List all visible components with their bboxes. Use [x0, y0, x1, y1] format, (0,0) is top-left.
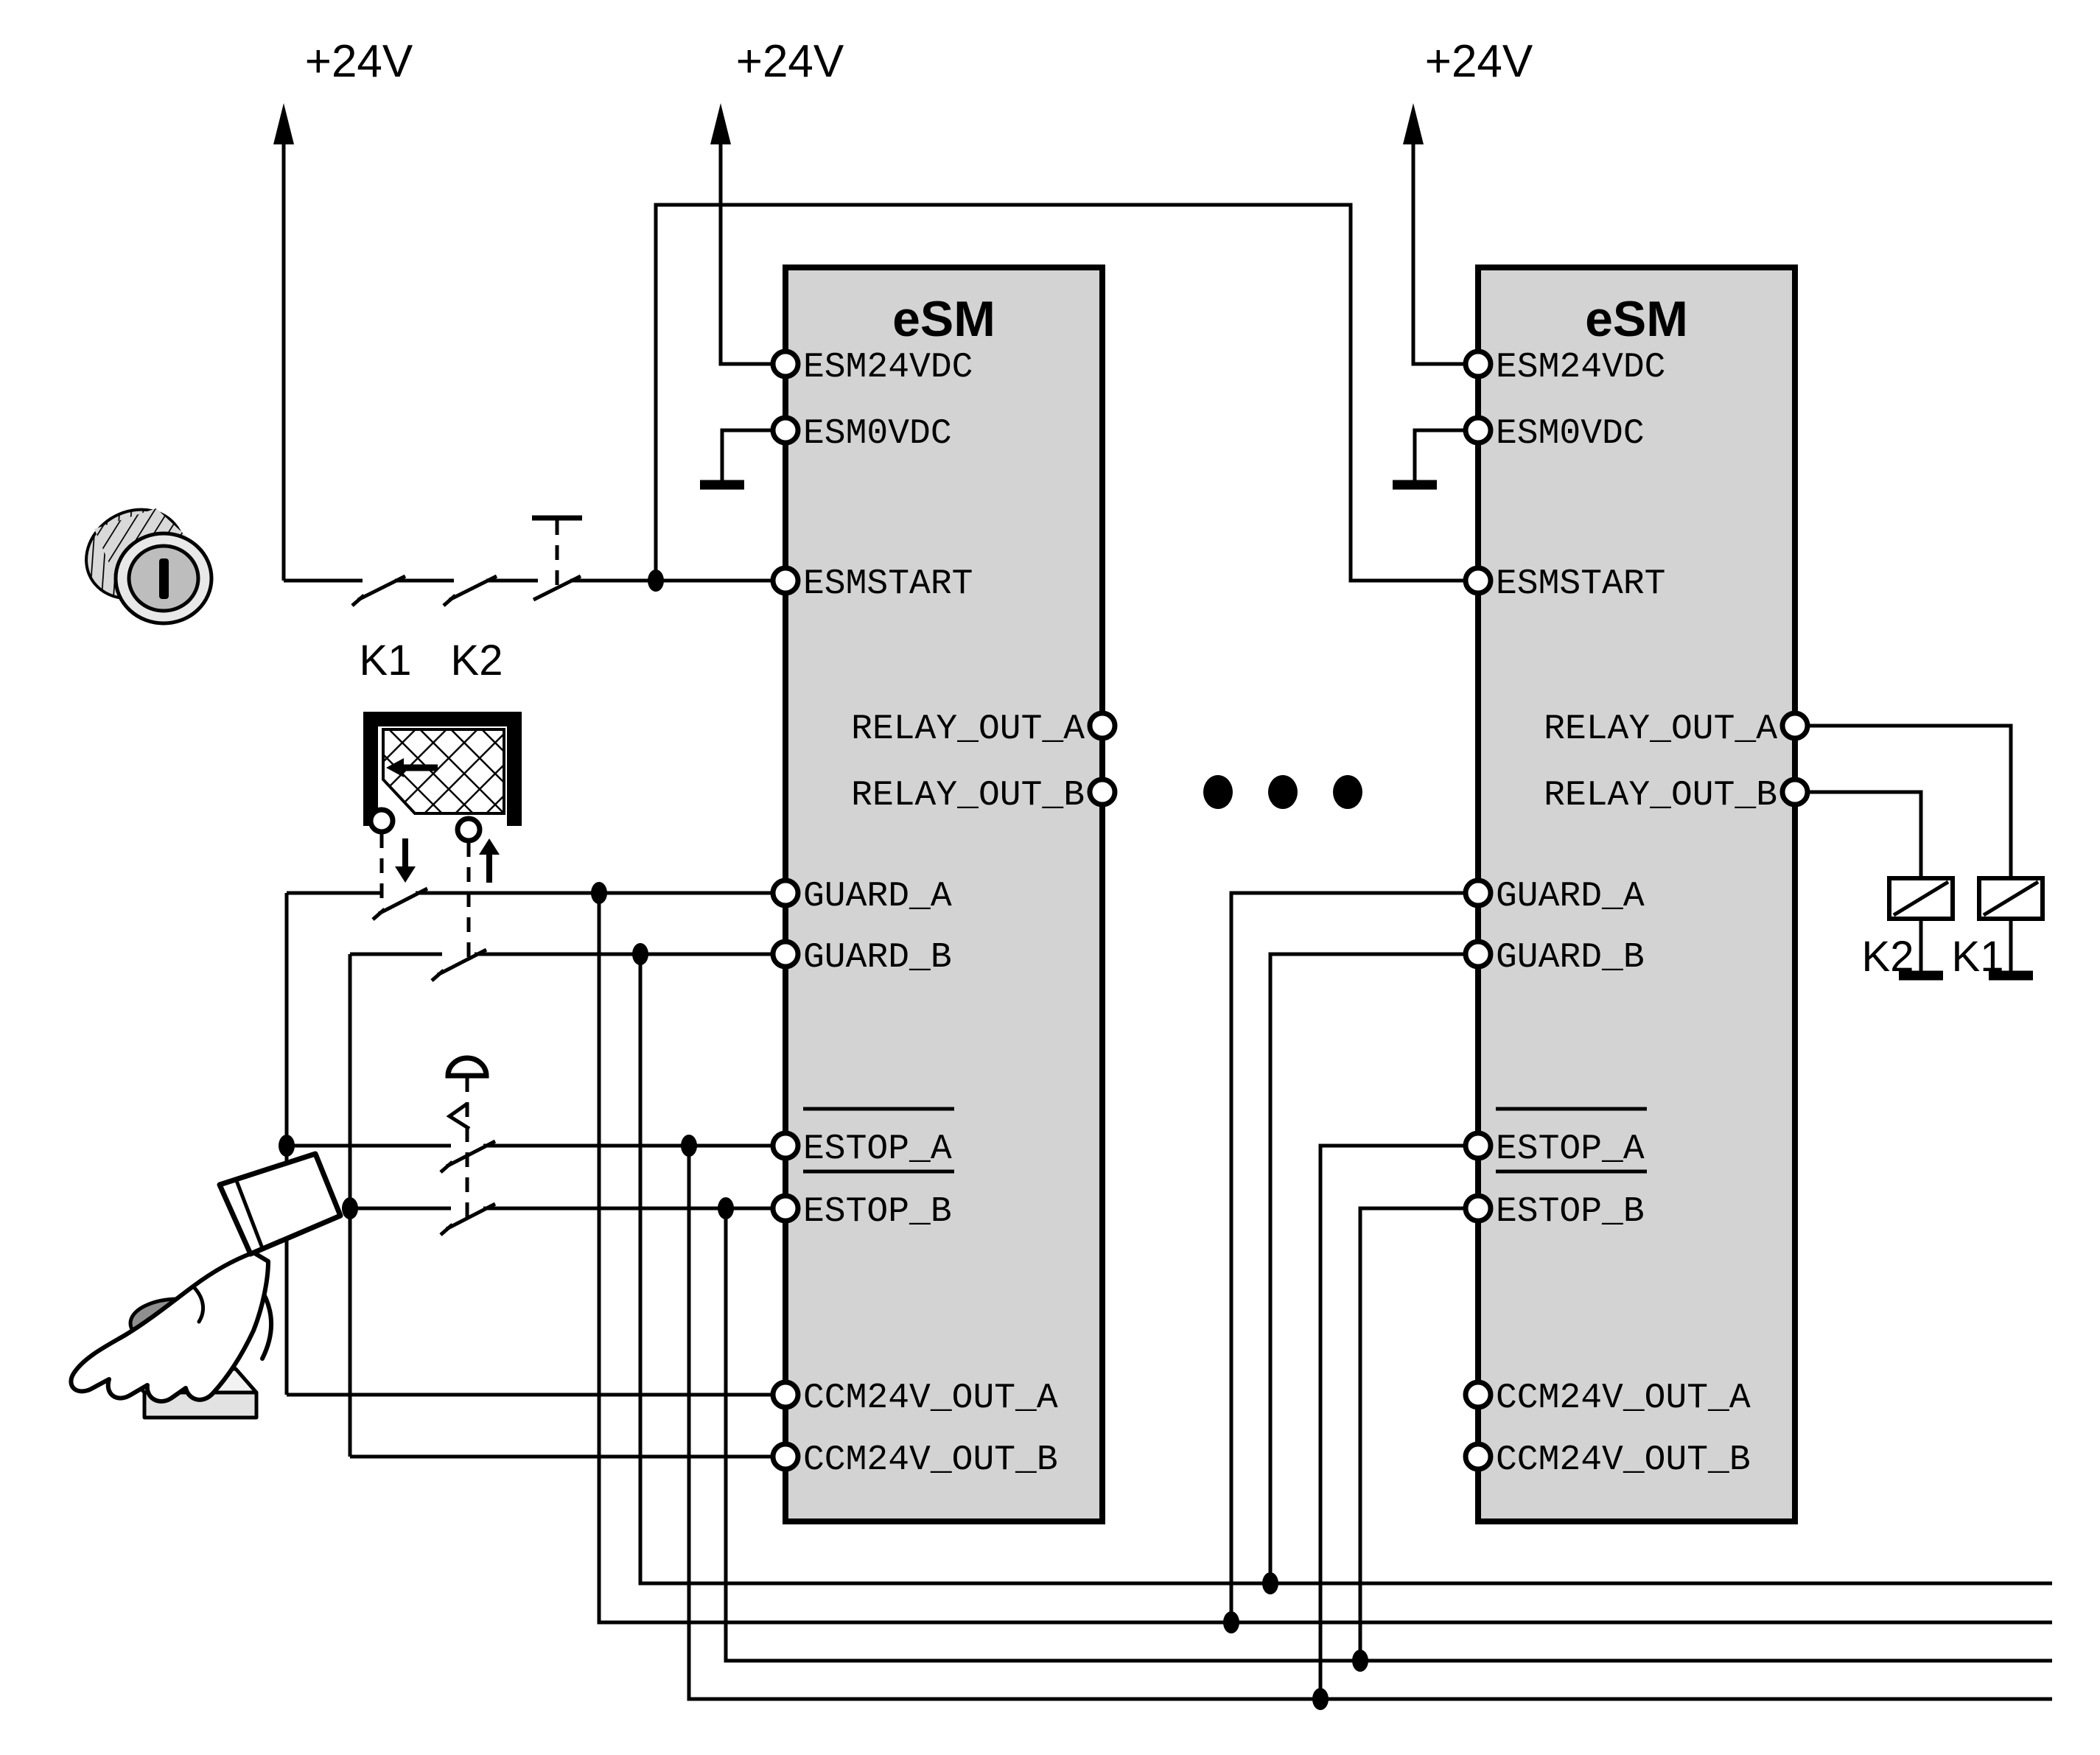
pin-label-esmstart: ESMSTART: [803, 564, 973, 604]
pin-label-ccm24v-out-a: CCM24V_OUT_A: [1496, 1379, 1751, 1418]
pin-guard-b: [1466, 942, 1491, 967]
left-esm-module: eSM ESM24VDC ESM0VDC ESMSTART RELAY_OUT_…: [773, 267, 1115, 1521]
pin-esm0vdc: [773, 418, 798, 443]
junction-dot: [1352, 1650, 1368, 1672]
pin-label-guard-b: GUARD_B: [803, 938, 952, 978]
k1-coil-label: K1: [1952, 933, 2004, 981]
junction-dot: [1223, 1611, 1239, 1633]
pin-label-ccm24v-out-b: CCM24V_OUT_B: [803, 1440, 1058, 1480]
pin-label-relay-out-a: RELAY_OUT_A: [1544, 710, 1777, 749]
pin-relay-out-b: [1090, 780, 1115, 805]
pin-label-relay-out-b: RELAY_OUT_B: [851, 776, 1085, 816]
key-i-mark: [159, 558, 169, 599]
pin-ccm24v-out-a: [1466, 1382, 1491, 1407]
pin-ccm24v-out-b: [1466, 1444, 1491, 1469]
pin-label-guard-a: GUARD_A: [803, 877, 952, 917]
guard-frame-right: [507, 712, 522, 826]
pin-guard-a: [773, 880, 798, 905]
junction-dot: [342, 1197, 358, 1219]
pin-estop-a: [1466, 1133, 1491, 1158]
pin-esm0vdc: [1466, 418, 1491, 443]
pin-label-guard-a: GUARD_A: [1496, 877, 1645, 917]
pin-estop-a: [773, 1133, 798, 1158]
pin-ccm24v-out-b: [773, 1444, 798, 1469]
right-esm-module: eSM ESM24VDC ESM0VDC ESMSTART RELAY_OUT_…: [1466, 267, 1807, 1521]
ellipsis-dot: [1333, 775, 1362, 809]
k2-contact-label: K2: [451, 637, 503, 684]
pin-label-esm0vdc: ESM0VDC: [803, 414, 952, 454]
pin-label-estop-a: ESTOP_A: [803, 1129, 952, 1169]
guard-hinge-a: [371, 810, 393, 832]
pin-label-esm0vdc: ESM0VDC: [1496, 414, 1645, 454]
right-module-title: eSM: [1585, 291, 1688, 347]
chain-ellipsis-dots: [1203, 775, 1362, 809]
pin-guard-b: [773, 942, 798, 967]
junction-dot: [1312, 1688, 1329, 1710]
power-rail-1-label: +24V: [305, 36, 413, 87]
pin-label-ccm24v-out-a: CCM24V_OUT_A: [803, 1379, 1058, 1418]
pin-label-esm24vdc: ESM24VDC: [803, 348, 973, 388]
pin-label-esm24vdc: ESM24VDC: [1496, 348, 1665, 388]
guard-frame-top: [363, 712, 522, 726]
pin-estop-b: [1466, 1196, 1491, 1221]
pin-esm24vdc: [773, 351, 798, 376]
pin-label-guard-b: GUARD_B: [1496, 938, 1645, 978]
pin-label-esmstart: ESMSTART: [1496, 564, 1665, 604]
pin-label-estop-b: ESTOP_B: [1496, 1192, 1645, 1232]
power-rail-3-label: +24V: [1425, 36, 1533, 87]
pin-esmstart: [773, 568, 798, 593]
wiring-diagram: +24V +24V +24V eSM ESM24VDC ESM0VDC ESMS…: [0, 0, 2100, 1755]
guard-hinge-b: [458, 819, 480, 841]
pin-label-relay-out-b: RELAY_OUT_B: [1544, 776, 1777, 816]
pin-label-ccm24v-out-b: CCM24V_OUT_B: [1496, 1440, 1751, 1480]
junction-dot: [1262, 1572, 1278, 1594]
ellipsis-dot: [1203, 775, 1233, 809]
k2-coil-label: K2: [1862, 933, 1914, 981]
power-rail-2-label: +24V: [736, 36, 844, 87]
pin-esmstart: [1466, 568, 1491, 593]
k1-contact-label: K1: [360, 637, 412, 684]
pin-estop-b: [773, 1196, 798, 1221]
pin-label-estop-b: ESTOP_B: [803, 1192, 952, 1232]
pin-relay-out-a: [1782, 713, 1807, 738]
pin-guard-a: [1466, 880, 1491, 905]
pin-ccm24v-out-a: [773, 1382, 798, 1407]
pin-relay-out-b: [1782, 780, 1807, 805]
pin-label-estop-a: ESTOP_A: [1496, 1129, 1645, 1169]
pin-esm24vdc: [1466, 351, 1491, 376]
ellipsis-dot: [1268, 775, 1298, 809]
pin-label-relay-out-a: RELAY_OUT_A: [851, 710, 1085, 749]
left-module-title: eSM: [892, 291, 995, 347]
pin-relay-out-a: [1090, 713, 1115, 738]
junction-dot: [279, 1135, 295, 1157]
